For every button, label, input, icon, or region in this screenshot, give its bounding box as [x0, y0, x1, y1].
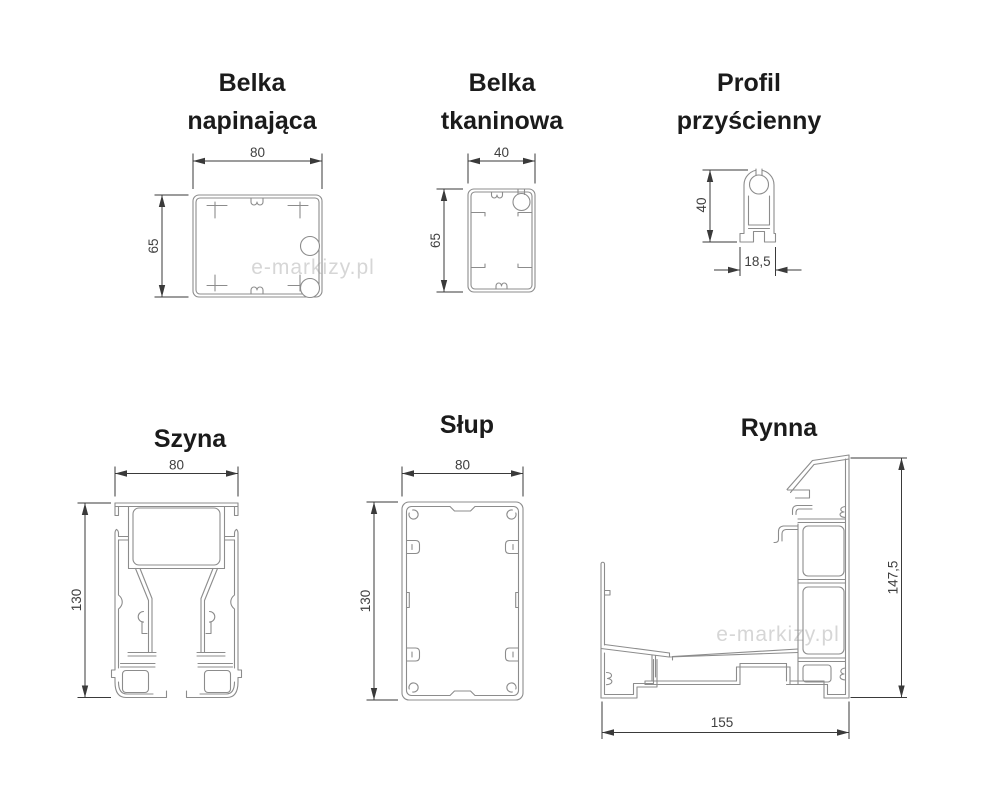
rynna-drawing: 147,5 155	[601, 455, 907, 739]
height-dimension-label: 65	[146, 238, 161, 253]
technical-drawing-sheet: e-markizy.pl e-markizy.pl Belka napinają…	[0, 0, 1000, 800]
screw-boss	[301, 279, 320, 298]
belka-napinajaca-drawing: 80 65	[146, 145, 322, 298]
profil-przyscienny-drawing: 40 18,5	[694, 168, 802, 276]
belka-tkaninowa-drawing: 40 65	[428, 145, 535, 292]
width-dimension-label: 80	[455, 458, 470, 473]
szyna-dimensions	[78, 467, 239, 698]
bottom-width-dimension-label: 155	[711, 715, 734, 730]
szyna-drawing: 80 130	[69, 458, 242, 698]
profiles-drawing: 80 65 40 65	[0, 0, 1000, 800]
height-dimension-label: 65	[428, 233, 443, 248]
belka-tkaninowa-dimensions	[437, 154, 536, 293]
keder-channel	[513, 194, 530, 211]
height-dimension-label: 147,5	[886, 561, 901, 595]
width-dimension-label: 80	[250, 145, 265, 160]
screw-boss	[301, 237, 320, 256]
rynna-dimensions	[602, 458, 907, 739]
width-dimension-label: 40	[494, 145, 509, 160]
width-dimension-label: 80	[169, 458, 184, 473]
keder-channel	[750, 175, 769, 194]
height-dimension-label: 130	[69, 589, 84, 612]
slup-drawing: 80 130	[358, 458, 523, 701]
height-dimension-label: 130	[358, 590, 373, 613]
belka-napinajaca-dimensions	[155, 154, 323, 298]
bottom-width-dimension-label: 18,5	[744, 254, 770, 269]
height-dimension-label: 40	[694, 197, 709, 212]
